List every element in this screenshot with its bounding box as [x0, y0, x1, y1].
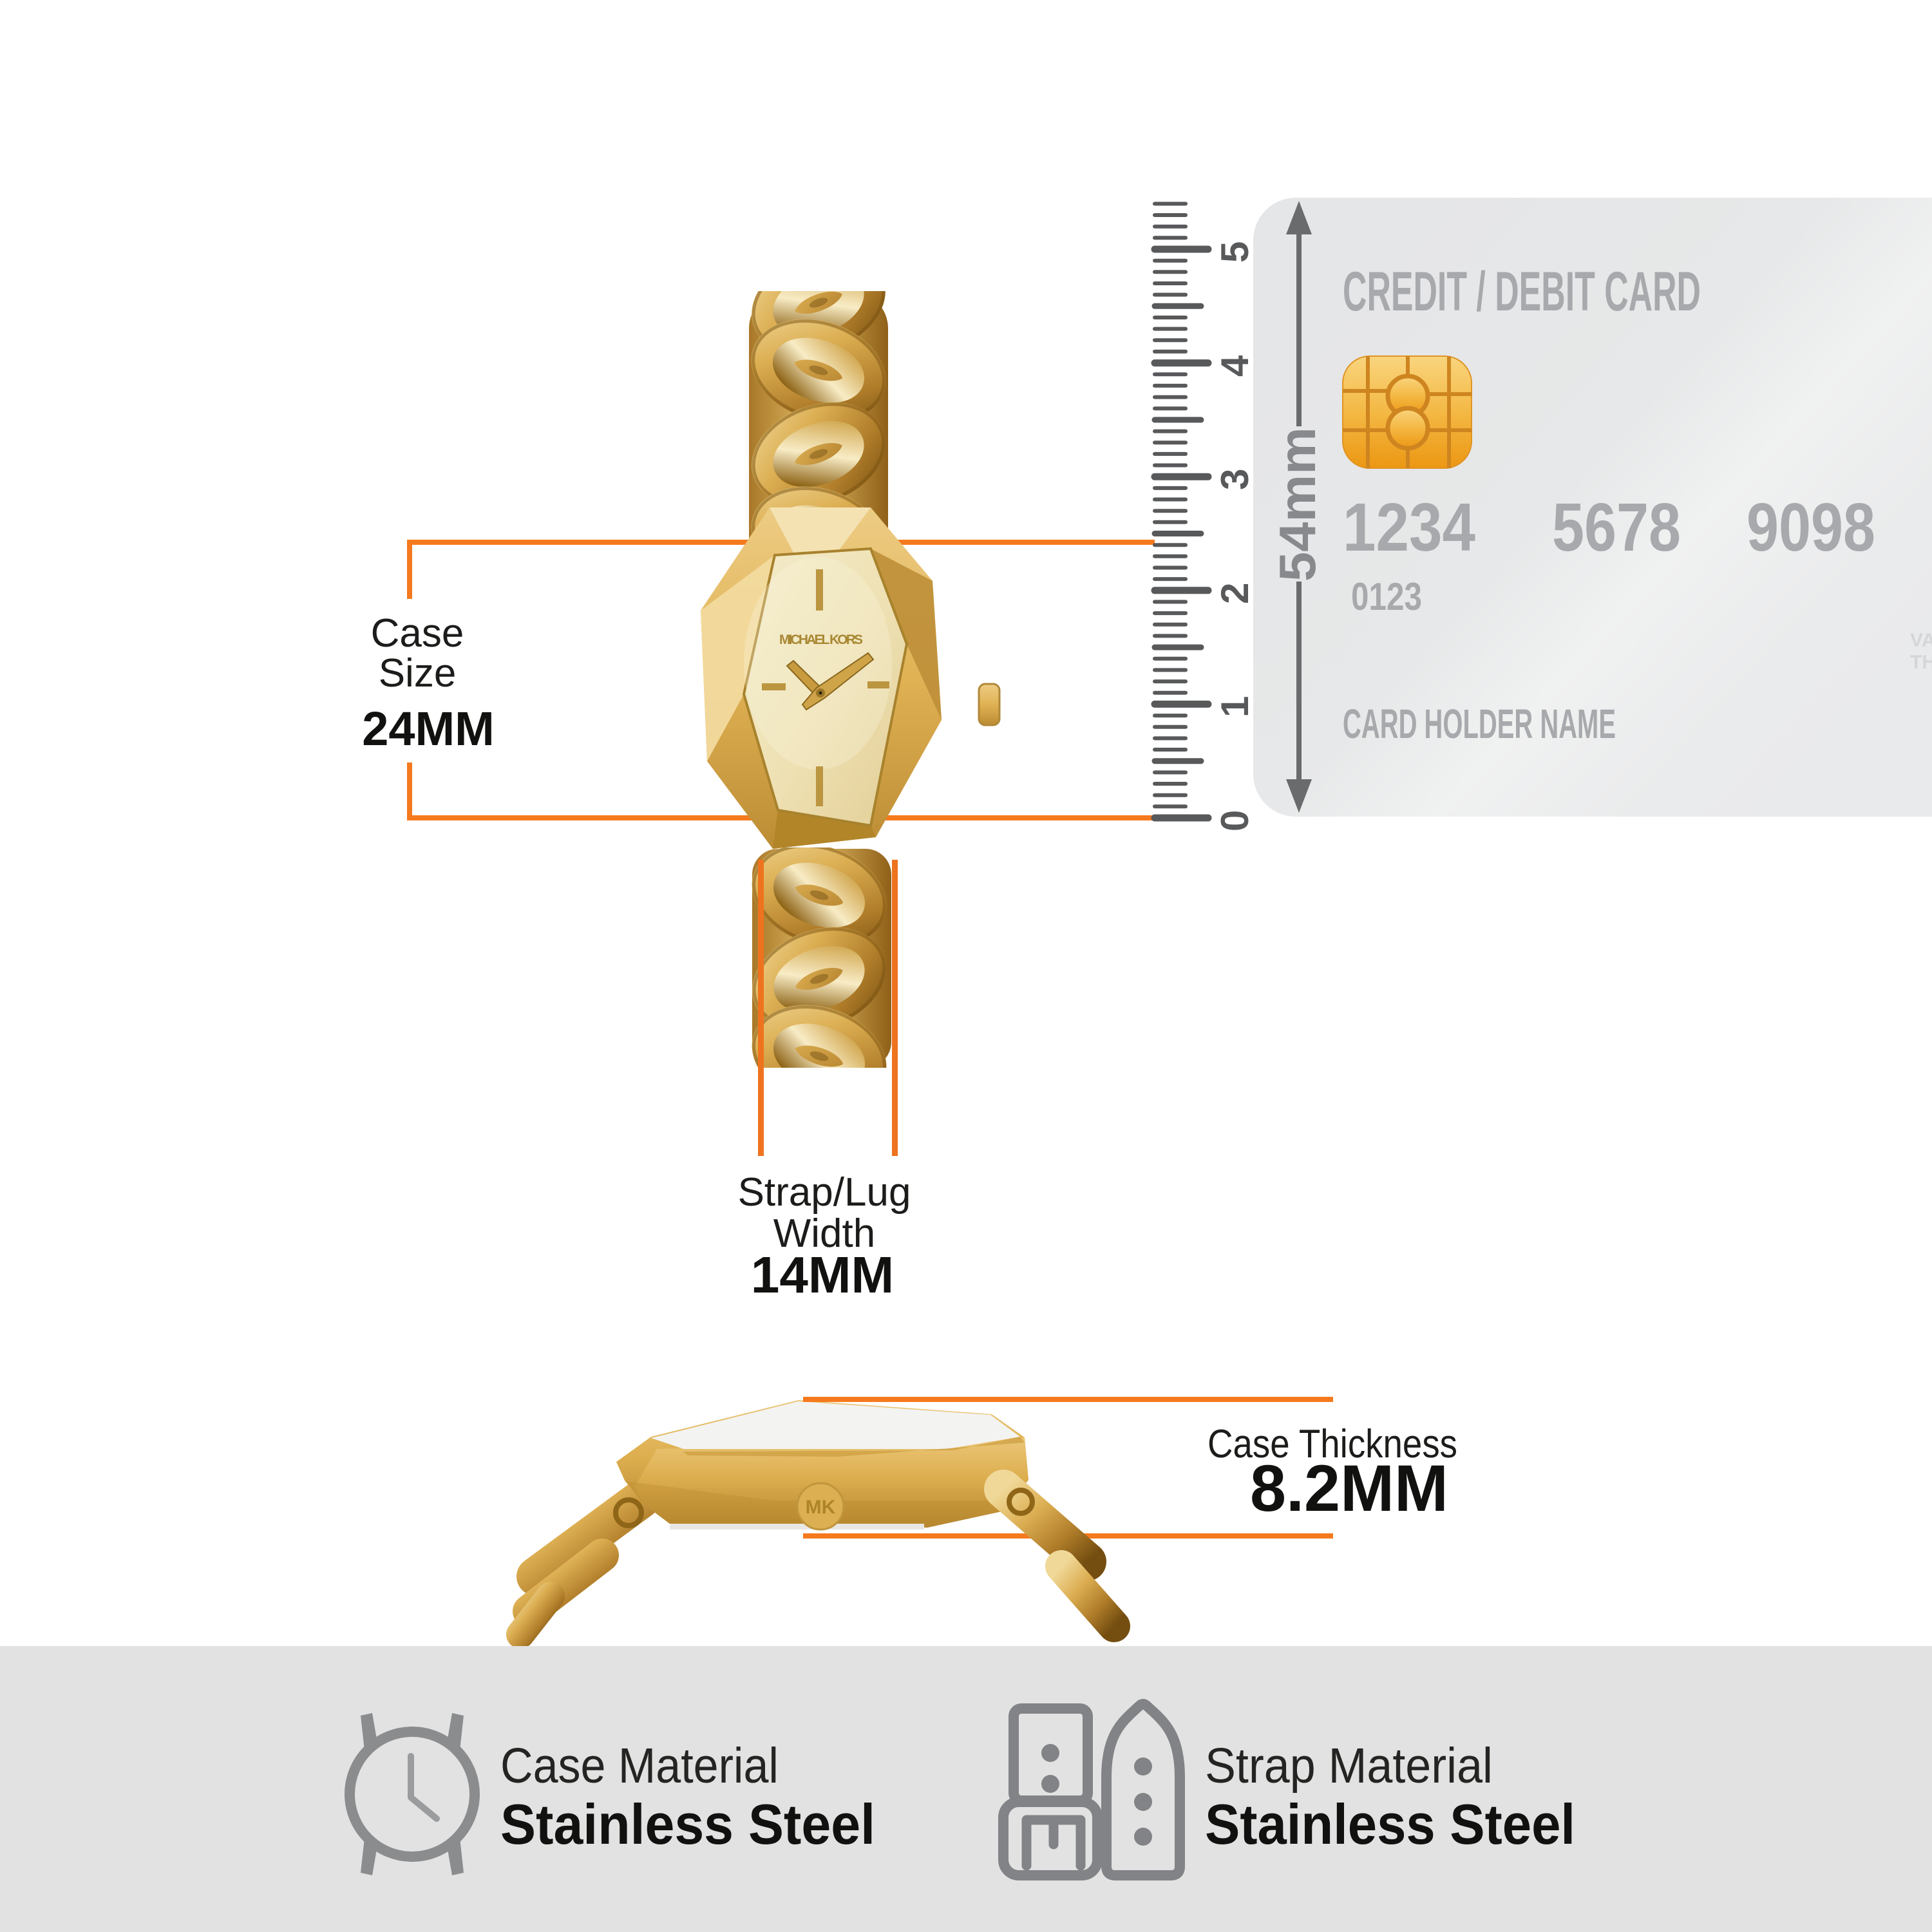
svg-text:5: 5 [1213, 241, 1256, 263]
svg-text:MK: MK [806, 1497, 836, 1518]
svg-text:9098: 9098 [1747, 489, 1875, 565]
svg-text:24MM: 24MM [362, 702, 495, 755]
svg-text:Case Material: Case Material [500, 1738, 779, 1794]
svg-text:14MM: 14MM [751, 1246, 894, 1303]
svg-text:MICHAEL KORS: MICHAEL KORS [779, 632, 864, 647]
svg-text:CREDIT / DEBIT CARD: CREDIT / DEBIT CARD [1343, 261, 1701, 323]
svg-text:Stainless Steel: Stainless Steel [1205, 1792, 1575, 1856]
svg-text:5678: 5678 [1552, 489, 1681, 565]
svg-text:54mm: 54mm [1269, 427, 1326, 582]
svg-text:0: 0 [1213, 810, 1256, 831]
svg-text:Case: Case [371, 611, 464, 656]
svg-text:1234: 1234 [1343, 489, 1475, 565]
svg-text:4: 4 [1213, 355, 1256, 377]
svg-text:3: 3 [1213, 469, 1256, 490]
svg-text:8.2MM: 8.2MM [1250, 1452, 1448, 1525]
svg-text:Stainless Steel: Stainless Steel [500, 1792, 875, 1856]
svg-text:VALID: VALID [1910, 630, 1932, 651]
svg-text:1: 1 [1213, 696, 1256, 717]
svg-text:0123: 0123 [1351, 575, 1422, 618]
svg-text:Size: Size [379, 651, 457, 696]
svg-text:CARD HOLDER NAME: CARD HOLDER NAME [1343, 701, 1616, 747]
svg-text:Strap/Lug: Strap/Lug [738, 1170, 911, 1215]
svg-text:THRU: THRU [1910, 652, 1932, 673]
svg-text:Strap Material: Strap Material [1205, 1738, 1493, 1794]
svg-text:2: 2 [1213, 583, 1256, 604]
